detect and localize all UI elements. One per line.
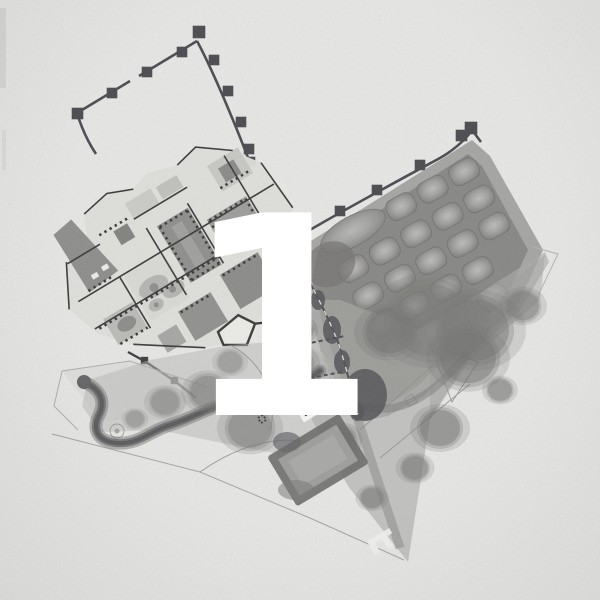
site-plan-figure: 1 <box>0 0 600 600</box>
numeral-overlay: 1 <box>170 162 390 476</box>
